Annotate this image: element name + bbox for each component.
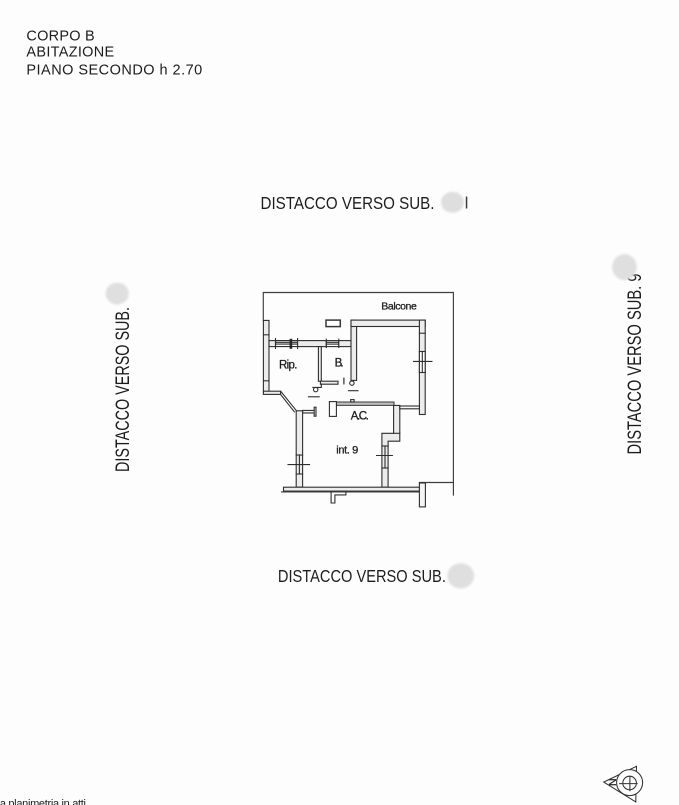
- svg-text:N: N: [607, 778, 619, 786]
- svg-text:ABITAZIONE: ABITAZIONE: [26, 44, 114, 60]
- svg-text:CORPO B: CORPO B: [26, 28, 95, 44]
- svg-text:DISTACCO VERSO SUB. 9: DISTACCO VERSO SUB. 9: [625, 274, 646, 455]
- svg-text:B.: B.: [335, 358, 344, 370]
- svg-text:A.C.: A.C.: [351, 411, 369, 423]
- svg-text:DISTACCO VERSO SUB.: DISTACCO VERSO SUB.: [113, 307, 134, 472]
- svg-text:int. 9: int. 9: [336, 444, 358, 456]
- svg-text:Balcone: Balcone: [381, 301, 417, 313]
- svg-text:Rip.: Rip.: [279, 360, 298, 372]
- svg-text:DISTACCO VERSO SUB.: DISTACCO VERSO SUB.: [278, 566, 446, 586]
- svg-text:PIANO SECONDO h 2.70: PIANO SECONDO h 2.70: [26, 63, 202, 79]
- svg-text:na planimetria in atti: na planimetria in atti: [0, 798, 86, 805]
- svg-text:DISTACCO VERSO SUB.: DISTACCO VERSO SUB.: [261, 193, 435, 213]
